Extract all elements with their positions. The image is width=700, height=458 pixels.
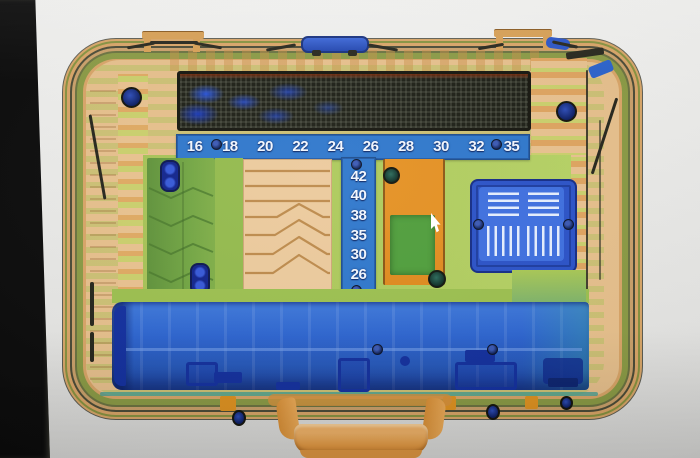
rail-rod (120, 348, 582, 351)
top-scale-label: 26 (353, 135, 388, 159)
bolt-icon (400, 356, 410, 366)
rivet-icon (563, 219, 574, 230)
organizer-mid-column (215, 158, 243, 296)
latch-hardware (338, 358, 370, 392)
top-scale-label: 28 (388, 135, 423, 159)
top-scale-label: 30 (423, 135, 458, 159)
rail-end-cap (114, 306, 126, 386)
side-scale-label: 26 (342, 268, 375, 282)
bottom-green-right (512, 270, 586, 304)
rivet-icon (121, 87, 142, 108)
xray-image-viewport[interactable]: 16 18 20 22 24 26 28 30 32 35 (0, 0, 700, 458)
latch-hardware (214, 372, 242, 383)
rivet-icon (487, 344, 498, 355)
latch-nub (312, 50, 321, 56)
fastener-icon (428, 270, 446, 288)
vent-slots-vertical (487, 226, 520, 256)
rivet-icon (351, 159, 362, 170)
foot-tab (525, 396, 538, 409)
rivet-icon (473, 219, 484, 230)
side-scale-label: 30 (342, 248, 375, 262)
top-scale-label: 16 (177, 135, 212, 159)
latch-hardware (276, 382, 300, 390)
latch-hardware (455, 362, 517, 390)
left-rim-hardware (90, 282, 94, 326)
side-scale-label: 40 (342, 189, 375, 203)
vent-slots-horizontal (488, 191, 519, 216)
pin-icon (160, 160, 180, 192)
monitor-bezel (0, 0, 52, 458)
rivet-icon (232, 410, 246, 426)
rivet-icon (556, 101, 577, 122)
latch-hardware (548, 378, 578, 387)
wave-outline-lines (243, 159, 332, 292)
rivet-icon (560, 396, 573, 410)
case-handle-grip-lip (300, 450, 422, 458)
top-scale-label: 32 (459, 135, 494, 159)
side-scale-label: 42 (342, 170, 375, 184)
rivet-icon (211, 139, 222, 150)
rivet-icon (372, 344, 383, 355)
fastener-icon (383, 167, 400, 184)
socket-insert-green (390, 215, 435, 275)
rivet-icon (491, 139, 502, 150)
wrench-organizer-waves (243, 159, 332, 292)
left-rim-hardware (90, 332, 94, 362)
wrench-compartment-dense (177, 71, 531, 131)
rivet-icon (486, 404, 500, 420)
side-scale-label: 38 (342, 209, 375, 223)
top-scale-label: 20 (247, 135, 282, 159)
top-scale-label: 24 (318, 135, 353, 159)
hinge-line (150, 41, 198, 44)
latch-nub (348, 50, 357, 56)
top-scale-label: 22 (283, 135, 318, 159)
vent-slots-horizontal (528, 191, 559, 216)
vent-slots-vertical (527, 226, 560, 256)
vertical-size-scale: 42 40 38 35 30 26 (341, 157, 376, 297)
side-scale-label: 35 (342, 229, 375, 243)
foot-tab (220, 396, 236, 411)
